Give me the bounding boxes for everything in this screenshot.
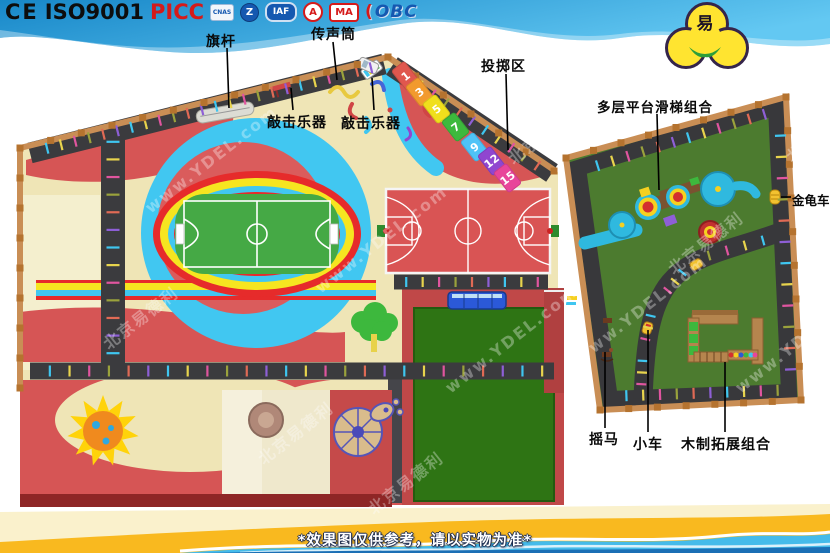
toy-bus [448, 292, 506, 309]
label-percussion-2: 敲击乐器 [341, 113, 401, 133]
goal-right [330, 224, 338, 244]
certification-bar: CE ISO9001 PICC CNAS Z IAF A MA OBC [5, 1, 418, 23]
label-small-car: 小车 [633, 434, 663, 454]
goal-left [176, 224, 184, 244]
basketball-court [377, 189, 559, 273]
iaf-badge-icon: IAF [265, 2, 297, 22]
logo-character: 易 [662, 9, 748, 34]
turf-field [402, 288, 564, 505]
logo-bird-icon [687, 44, 723, 64]
label-flagpole: 旗杆 [206, 31, 236, 51]
label-throwing-area: 投掷区 [481, 56, 526, 76]
oval-track [153, 171, 361, 297]
right-playground [566, 97, 801, 410]
z-badge-icon: Z [240, 3, 259, 22]
label-wooden-combo: 木制拓展组合 [681, 434, 771, 454]
picc-mark: PICC [150, 1, 204, 23]
cnas-badge-icon: CNAS [210, 4, 234, 21]
label-slide-combo: 多层平台滑梯组合 [597, 96, 713, 116]
label-rocking-horse: 摇马 [589, 429, 619, 449]
iso-mark: ISO9001 [45, 1, 144, 23]
beetle-car-item [770, 190, 780, 204]
obc-badge-icon: OBC [365, 2, 418, 22]
ce-mark: CE [5, 1, 39, 23]
playground-plan-poster: CE ISO9001 PICC CNAS Z IAF A MA OBC 易 旗杆… [0, 0, 830, 553]
label-speaking-tube: 传声筒 [311, 24, 356, 44]
ma-badge-icon: MA [329, 3, 359, 22]
disclaimer-text: *效果图仅供参考，请以实物为准* [298, 529, 532, 550]
label-percussion-1: 敲击乐器 [267, 112, 327, 132]
a-badge-icon: A [303, 2, 323, 22]
tiny-toys [566, 296, 577, 305]
company-logo: 易 [662, 2, 748, 76]
label-beetle-car: 金龟车 [792, 190, 830, 209]
